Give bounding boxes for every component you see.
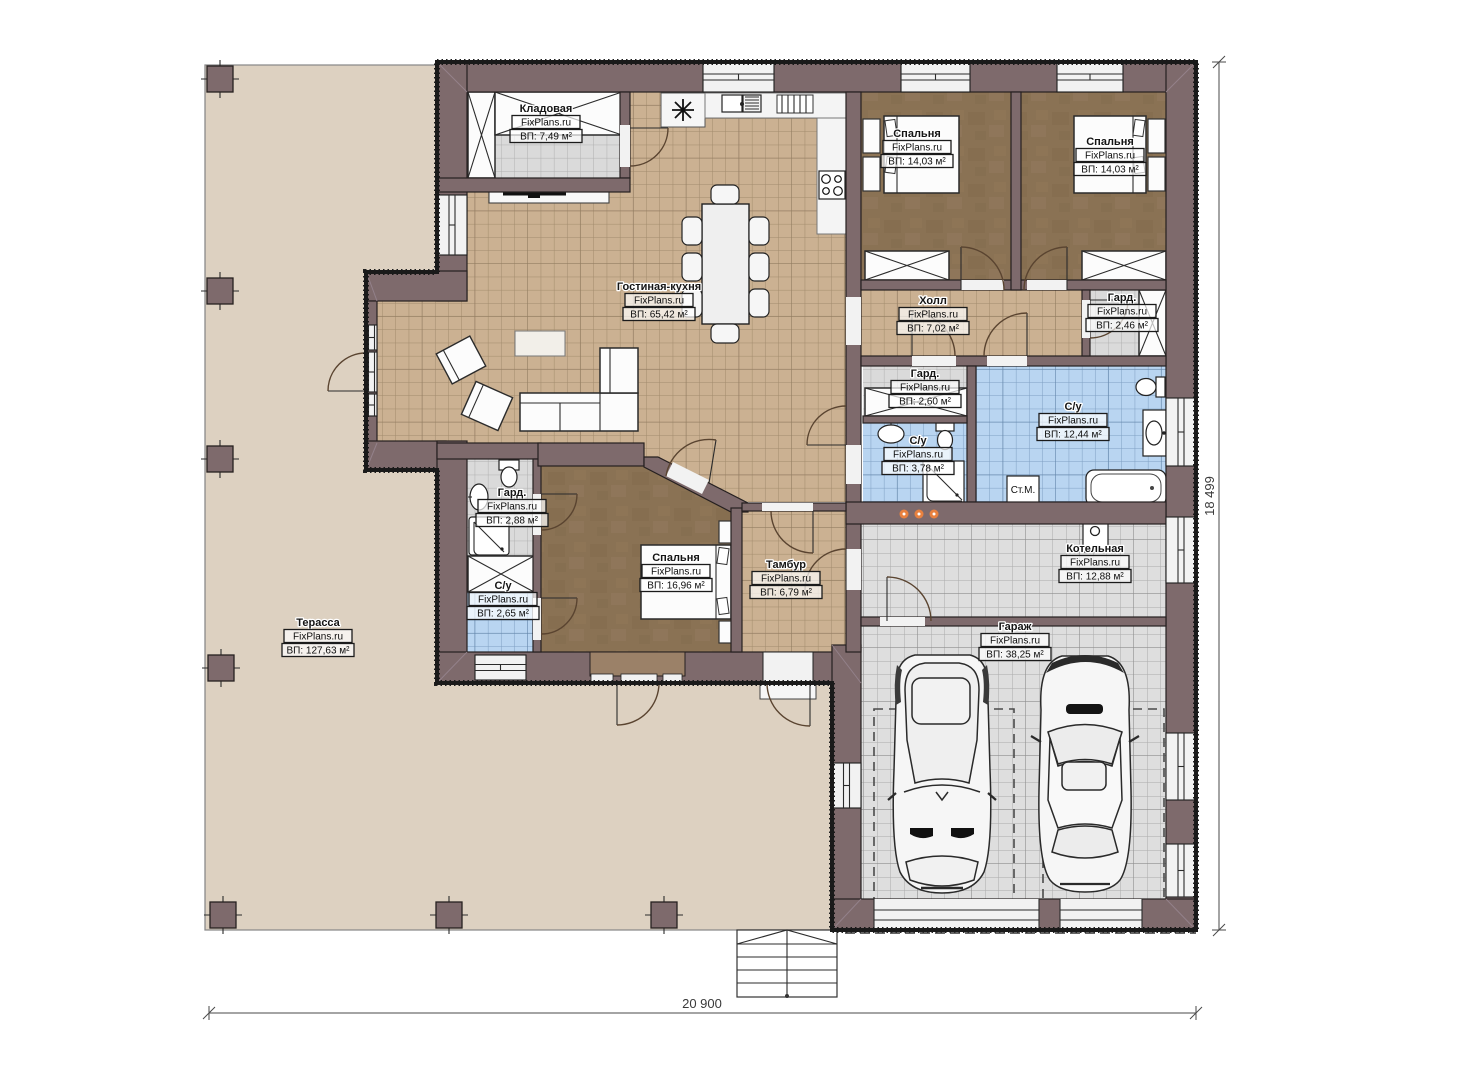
svg-text:FixPlans.ru: FixPlans.ru (1085, 151, 1135, 162)
svg-text:FixPlans.ru: FixPlans.ru (990, 636, 1040, 647)
svg-text:ВП: 7,49 м²: ВП: 7,49 м² (520, 132, 573, 143)
svg-text:FixPlans.ru: FixPlans.ru (893, 450, 943, 461)
svg-text:Гостиная-кухня: Гостиная-кухня (617, 281, 701, 293)
svg-text:FixPlans.ru: FixPlans.ru (900, 383, 950, 394)
svg-text:FixPlans.ru: FixPlans.ru (651, 567, 701, 578)
svg-text:20 900: 20 900 (682, 996, 722, 1011)
svg-text:Гард.: Гард. (911, 368, 940, 380)
svg-text:ВП: 14,03 м²: ВП: 14,03 м² (1081, 165, 1139, 176)
svg-text:С/у: С/у (1064, 401, 1082, 413)
svg-text:FixPlans.ru: FixPlans.ru (1048, 416, 1098, 427)
svg-text:Холл: Холл (919, 295, 947, 307)
svg-text:Гард.: Гард. (1108, 292, 1137, 304)
svg-text:FixPlans.ru: FixPlans.ru (521, 118, 571, 129)
svg-text:Гард.: Гард. (498, 487, 527, 499)
svg-text:ВП: 12,88 м²: ВП: 12,88 м² (1066, 572, 1124, 583)
svg-text:Котельная: Котельная (1066, 543, 1124, 555)
svg-text:FixPlans.ru: FixPlans.ru (761, 574, 811, 585)
svg-text:ВП: 3,78 м²: ВП: 3,78 м² (892, 464, 945, 475)
svg-text:ВП: 16,96 м²: ВП: 16,96 м² (647, 581, 705, 592)
svg-text:Ст.М.: Ст.М. (1011, 485, 1036, 496)
svg-text:Гараж: Гараж (999, 621, 1032, 633)
svg-text:Спальня: Спальня (893, 128, 941, 140)
svg-text:Кладовая: Кладовая (520, 103, 573, 115)
svg-text:С/у: С/у (494, 580, 512, 592)
svg-text:ВП: 12,44 м²: ВП: 12,44 м² (1044, 430, 1102, 441)
svg-text:FixPlans.ru: FixPlans.ru (1070, 558, 1120, 569)
svg-text:ВП: 127,63 м²: ВП: 127,63 м² (287, 646, 351, 657)
svg-text:ВП: 2,65 м²: ВП: 2,65 м² (477, 609, 530, 620)
svg-text:FixPlans.ru: FixPlans.ru (293, 632, 343, 643)
svg-text:ВП: 2,60 м²: ВП: 2,60 м² (899, 397, 952, 408)
svg-text:FixPlans.ru: FixPlans.ru (1097, 307, 1147, 318)
svg-text:ВП: 2,88 м²: ВП: 2,88 м² (486, 516, 539, 527)
svg-text:FixPlans.ru: FixPlans.ru (908, 310, 958, 321)
svg-text:С/у: С/у (909, 435, 927, 447)
svg-text:Спальня: Спальня (652, 552, 700, 564)
svg-text:18 499: 18 499 (1202, 476, 1217, 516)
svg-text:ВП: 6,79 м²: ВП: 6,79 м² (760, 588, 813, 599)
svg-text:ВП: 7,02 м²: ВП: 7,02 м² (907, 324, 960, 335)
svg-text:ВП: 65,42 м²: ВП: 65,42 м² (630, 310, 688, 321)
svg-text:ВП: 38,25 м²: ВП: 38,25 м² (986, 650, 1044, 661)
svg-text:Терасса: Терасса (296, 617, 340, 629)
svg-text:ВП: 2,46 м²: ВП: 2,46 м² (1096, 321, 1149, 332)
svg-text:Тамбур: Тамбур (766, 559, 806, 571)
svg-text:FixPlans.ru: FixPlans.ru (487, 502, 537, 513)
svg-text:ВП: 14,03 м²: ВП: 14,03 м² (888, 157, 946, 168)
svg-text:Спальня: Спальня (1086, 136, 1134, 148)
svg-text:FixPlans.ru: FixPlans.ru (478, 595, 528, 606)
svg-text:FixPlans.ru: FixPlans.ru (892, 143, 942, 154)
svg-text:FixPlans.ru: FixPlans.ru (634, 296, 684, 307)
